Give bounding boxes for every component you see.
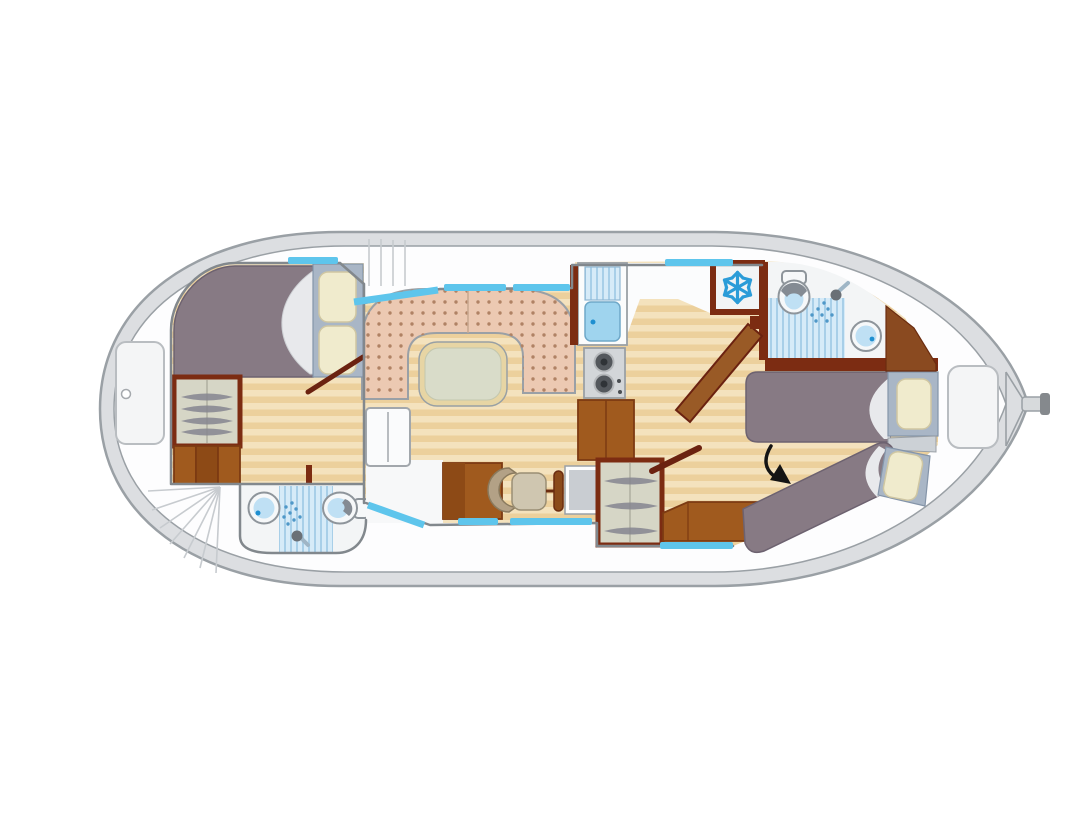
single-bed-upper <box>746 372 938 442</box>
salon-passage <box>366 460 443 523</box>
stove <box>584 348 625 398</box>
bow-wardrobe <box>174 377 240 446</box>
fridge <box>710 260 765 315</box>
bow-deck-locker <box>116 342 164 444</box>
door-post <box>306 465 312 484</box>
floor-plan-canvas <box>0 0 1092 819</box>
aft-toilet <box>779 271 810 314</box>
stern-deck-locker <box>948 366 998 448</box>
forward-bathroom <box>240 484 369 553</box>
sink-drainer <box>585 267 620 300</box>
galley-sink <box>585 302 620 341</box>
bench-locker <box>366 408 410 466</box>
window <box>665 259 733 266</box>
window <box>513 284 570 291</box>
aft-sideboard <box>663 502 757 541</box>
window <box>288 257 338 264</box>
forward-washbasin <box>249 493 280 524</box>
sink-drain <box>591 320 596 325</box>
bow-steps <box>174 446 240 484</box>
window <box>510 518 592 525</box>
window <box>660 542 733 549</box>
galley-lower-cabinet <box>578 400 634 460</box>
aft-washbasin <box>851 321 881 351</box>
helm-chair <box>488 468 546 512</box>
pillow <box>897 379 931 429</box>
tiller-grip <box>1040 393 1050 415</box>
window <box>458 518 498 525</box>
boat-floor-plan <box>0 0 1092 819</box>
double-bed <box>174 264 363 377</box>
locker-handle <box>122 390 131 399</box>
aft-bathroom-wall <box>759 262 768 360</box>
pillow <box>319 272 356 322</box>
salon-table <box>419 342 507 406</box>
window <box>444 284 506 291</box>
